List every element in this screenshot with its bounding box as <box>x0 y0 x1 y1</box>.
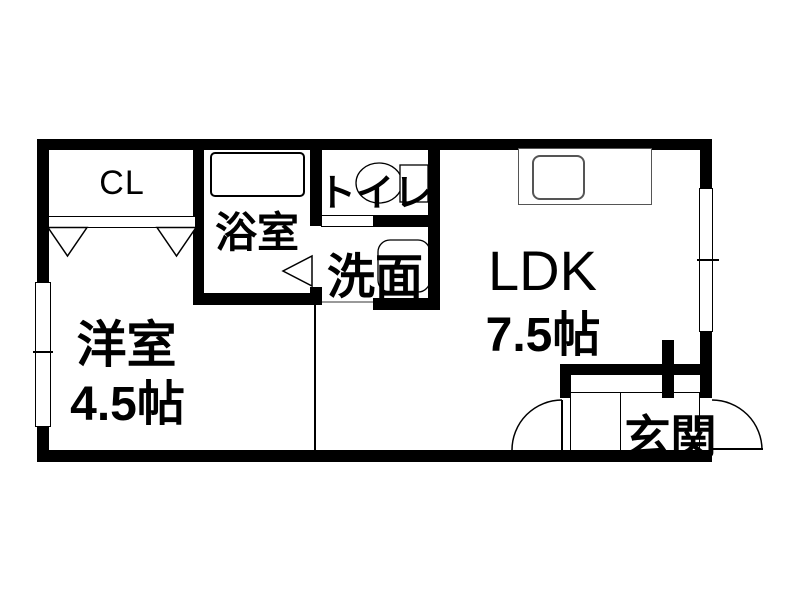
floor-plan: CL 浴室 トイレ 洗面 LDK 7.5帖 洋室 4.5帖 玄関 <box>0 0 800 600</box>
western-room-size-label: 4.5帖 <box>40 364 215 434</box>
bathroom-label: 浴室 <box>204 199 310 260</box>
ldk-label: LDK <box>455 238 630 303</box>
closet-label: CL <box>48 164 196 203</box>
bathroom-door-icon <box>283 256 312 286</box>
entrance-label: 玄関 <box>598 401 743 467</box>
washroom-label: 洗面 <box>320 237 430 307</box>
closet-folding-door-icon <box>48 228 196 257</box>
ldk-size-label: 7.5帖 <box>448 295 638 365</box>
toilet-label: トイレ <box>318 162 432 217</box>
